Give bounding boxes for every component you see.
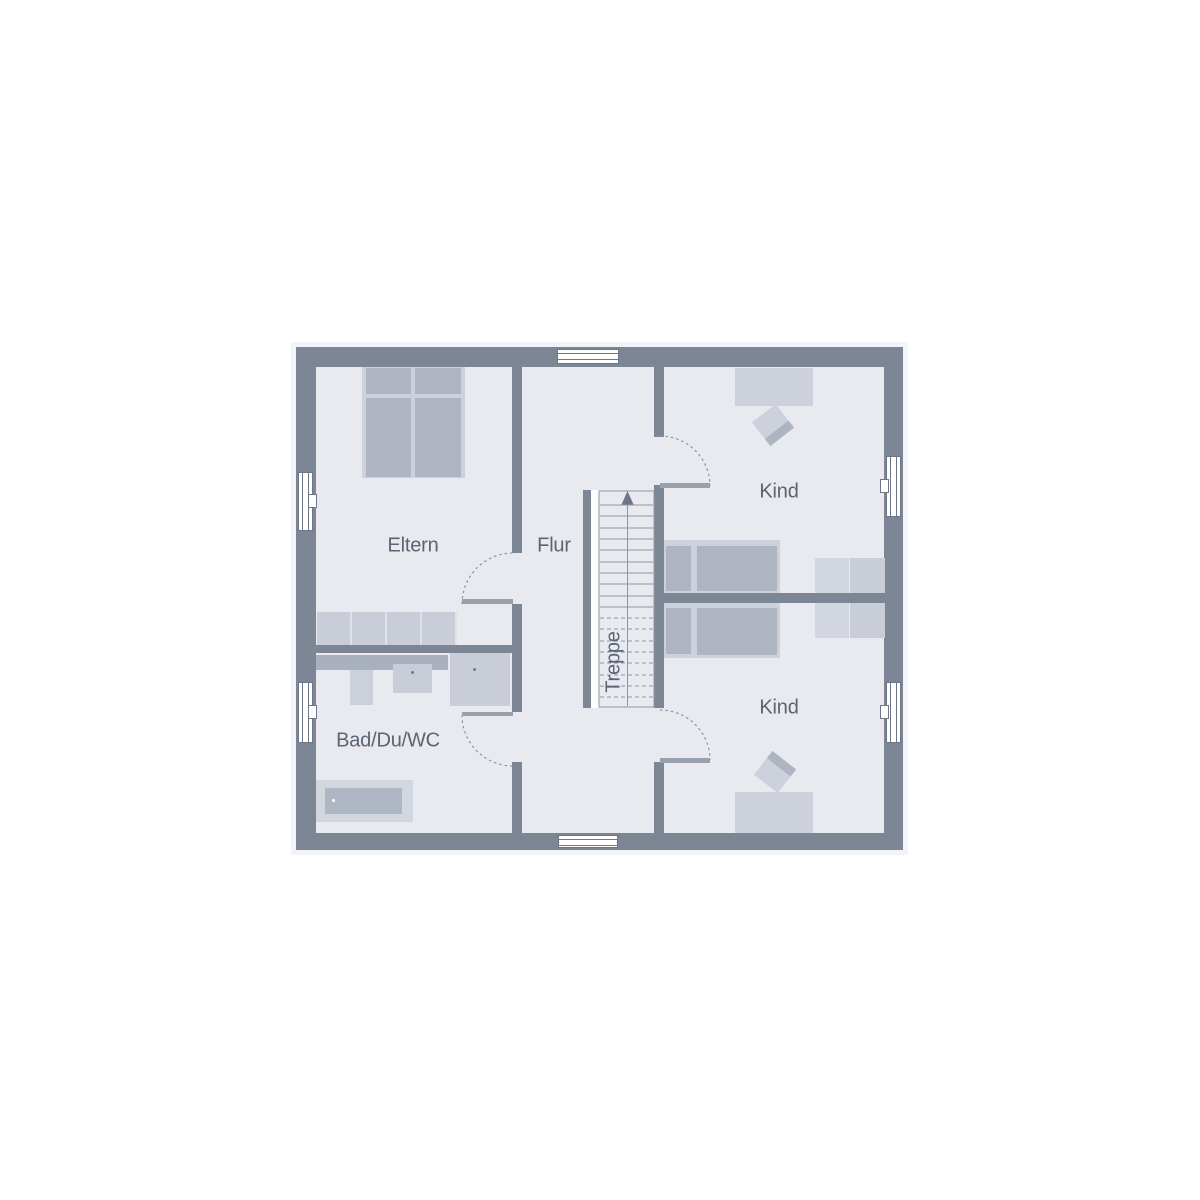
room-label-bad: Bad/Du/WC (336, 730, 440, 753)
stair-stringer (591, 490, 599, 708)
room-label-kind-top: Kind (759, 481, 798, 504)
room-label-eltern: Eltern (387, 535, 438, 558)
door-leaf-kind-bottom (660, 758, 710, 763)
door-swing-kind-bottom (660, 710, 710, 760)
stair-side-wall (583, 490, 591, 708)
floor-plan: Eltern Flur Kind Kind Bad/Du/WC Treppe (0, 0, 1200, 1200)
door-swing-bad (462, 715, 513, 766)
door-leaf-eltern (462, 599, 513, 604)
room-label-kind-bottom: Kind (759, 697, 798, 720)
room-label-flur: Flur (537, 535, 571, 558)
door-leaf-bad (462, 712, 513, 716)
linework-layer (296, 347, 903, 850)
stair-up-arrow-icon (622, 491, 634, 505)
door-leaf-kind-top (660, 483, 710, 488)
building: Eltern Flur Kind Kind Bad/Du/WC Treppe (296, 347, 903, 850)
door-swing-kind-top (660, 436, 710, 486)
room-label-treppe: Treppe (603, 631, 626, 692)
door-swing-eltern (462, 553, 513, 604)
